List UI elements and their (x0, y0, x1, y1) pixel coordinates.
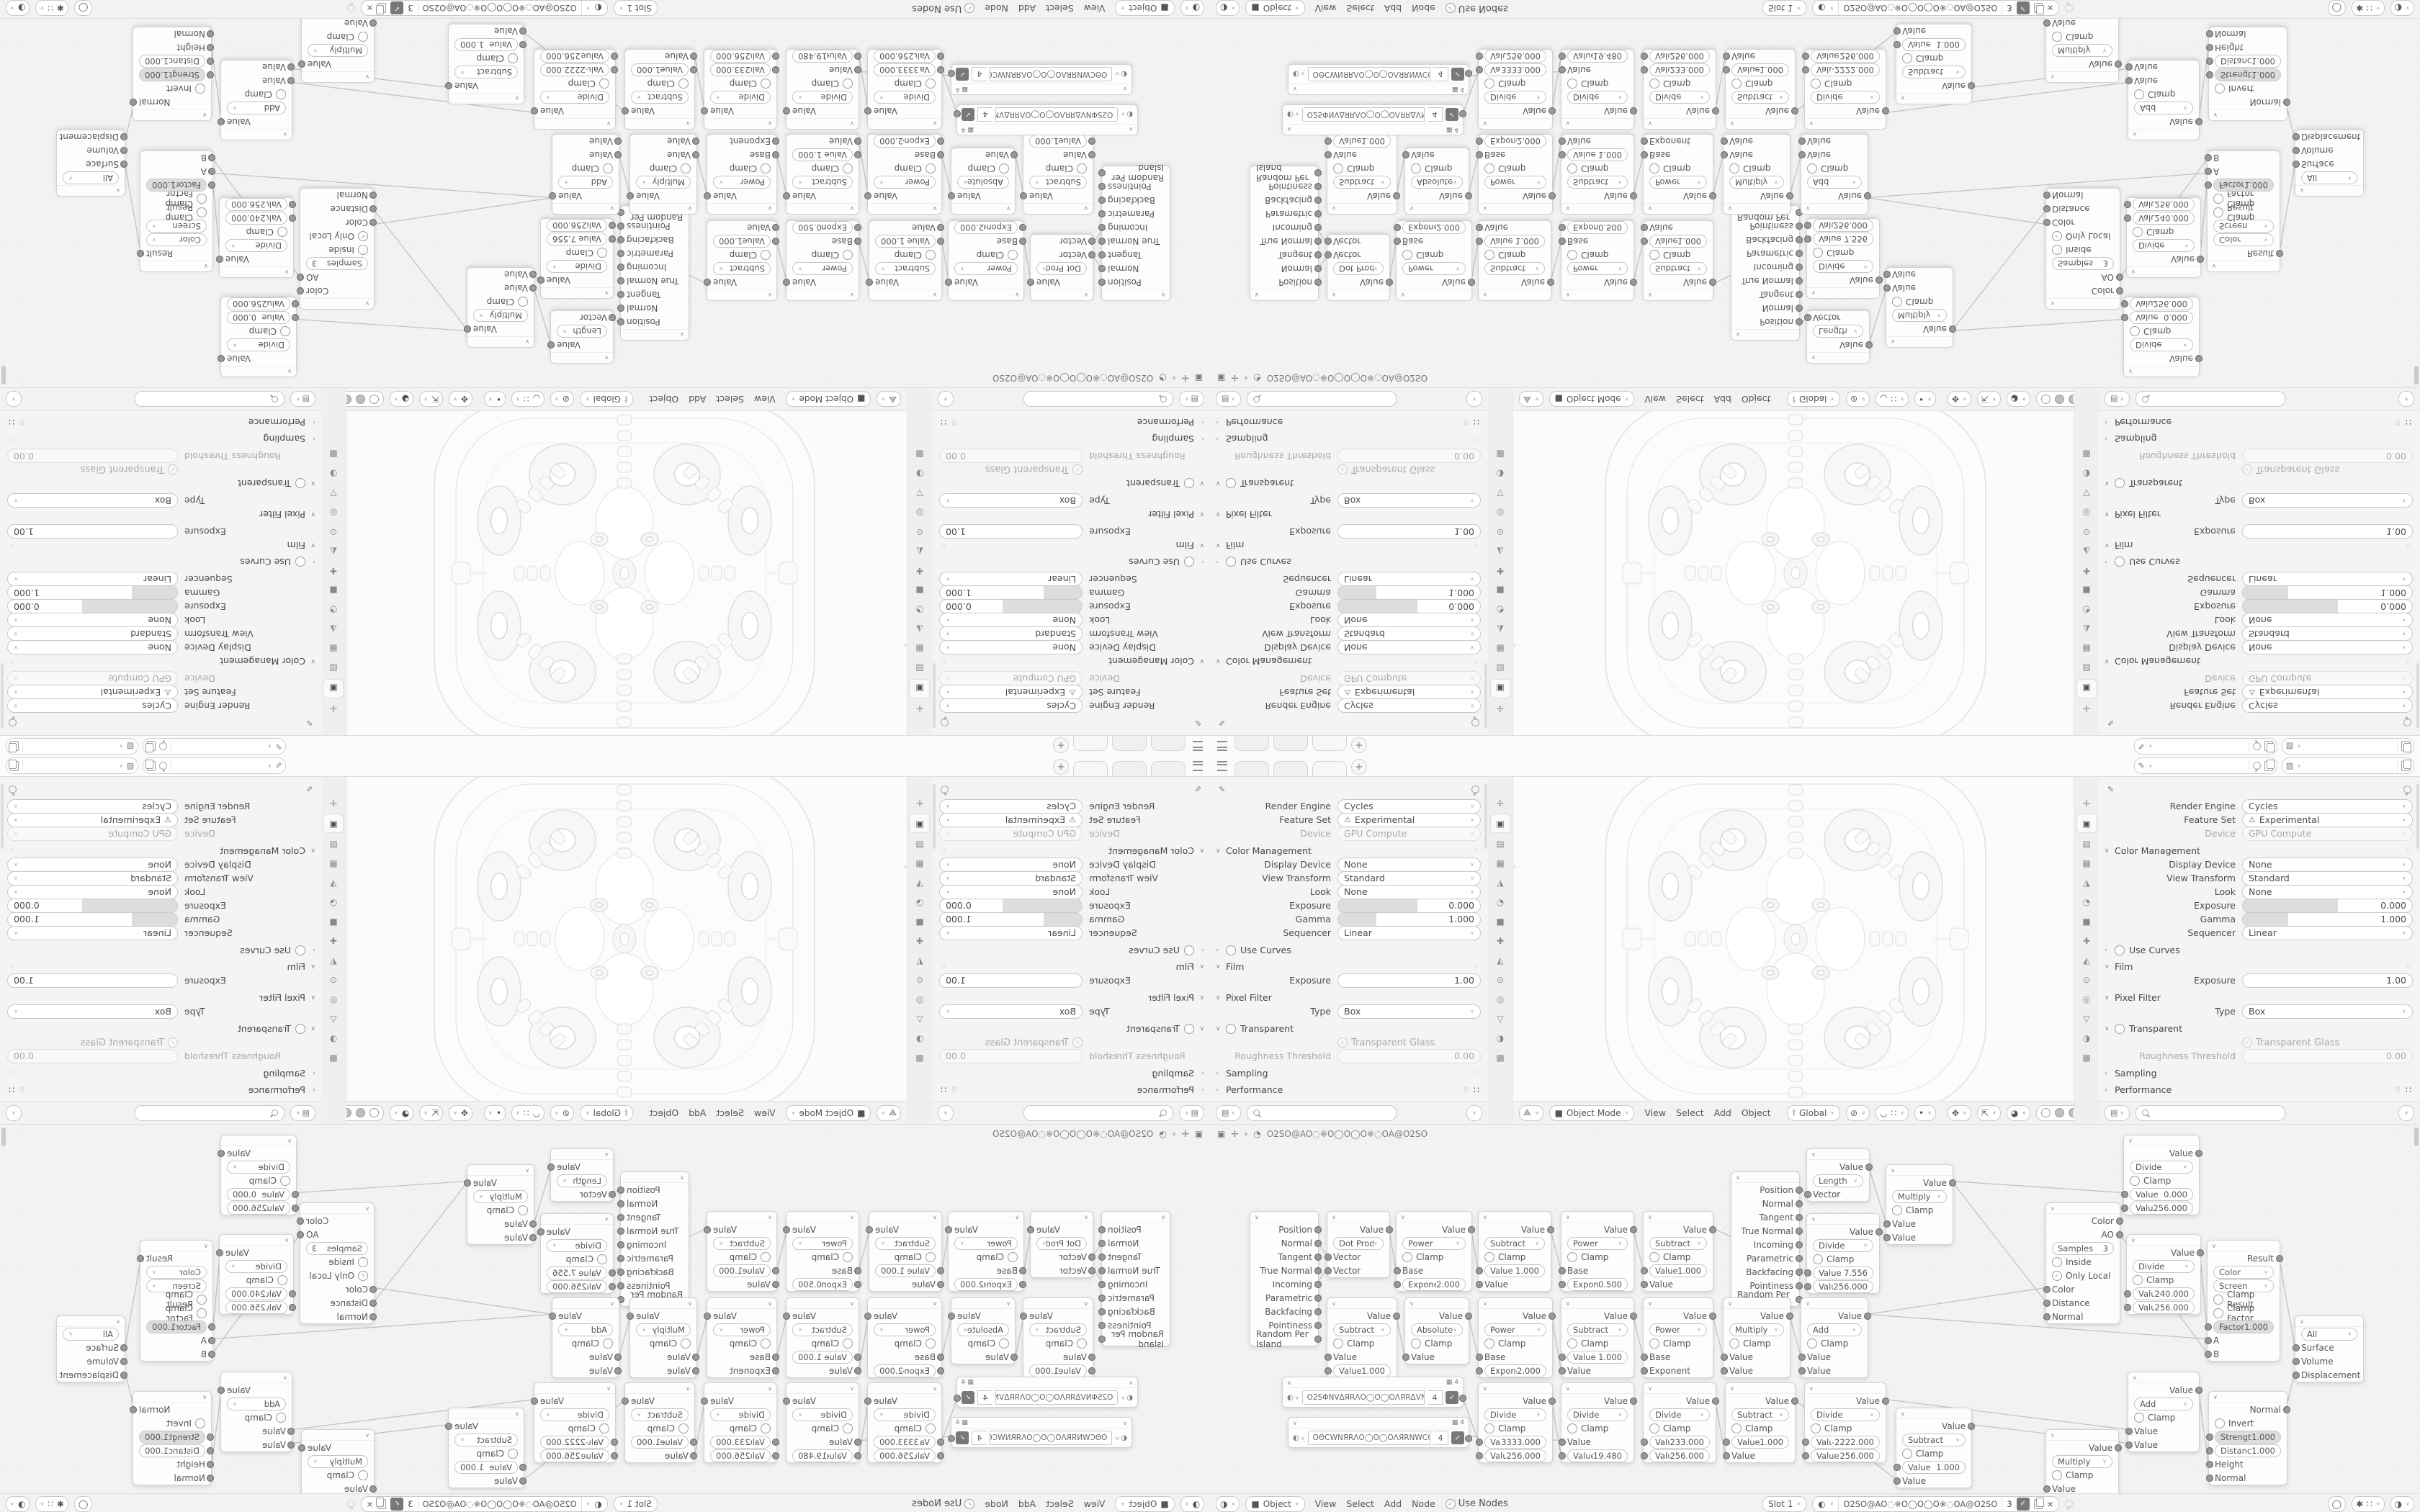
input-socket[interactable] (1721, 1354, 1728, 1361)
checkbox-transparent-glass[interactable]: ✓Transparent Glass (1337, 464, 1435, 475)
node-checkbox-only-local[interactable]: ✓Only Local (310, 1271, 368, 1281)
node-value-field-factor[interactable]: Factor1.000 (2213, 179, 2274, 192)
node-collapse-chevron[interactable]: ∨ (1250, 289, 1318, 300)
scrollbar[interactable] (1484, 663, 1487, 728)
node[interactable]: ∨All∨SurfaceVolumeDisplacement (56, 1315, 125, 1382)
node-operation-select[interactable]: Divide∨ (792, 91, 853, 104)
node[interactable]: ∨ValueAdd∨ClampValueValue (1801, 1297, 1868, 1378)
output-socket[interactable] (1864, 192, 1871, 199)
output-socket[interactable] (1630, 107, 1637, 114)
input-socket[interactable] (1476, 138, 1483, 145)
output-socket[interactable] (1630, 192, 1637, 199)
node-value-field-value[interactable]: Value240.000 (225, 212, 287, 225)
input-socket[interactable] (2205, 1337, 2212, 1344)
output-socket[interactable] (1099, 1281, 1106, 1288)
gizmo-toggle[interactable]: ✥ ∨ (1948, 1105, 1971, 1121)
section-pixel-filter[interactable]: ∨Pixel Filter (941, 509, 1204, 520)
image-id-selector[interactable]: ▨ ∨ (2282, 757, 2414, 774)
tab-active-tool[interactable]: ✛ (910, 794, 930, 812)
node-collapse-chevron[interactable]: ∨ (2208, 1241, 2280, 1251)
section-pixel-filter[interactable]: ∨Pixel Filter (1216, 992, 1479, 1003)
node-collapse-chevron[interactable]: ∨ (2127, 1235, 2200, 1246)
input-socket[interactable] (1894, 1477, 1901, 1485)
tab-physics[interactable]: ⊙ (324, 523, 344, 541)
node-collapse-chevron[interactable]: ∨ (449, 93, 524, 104)
shading-wireframe-icon[interactable] (2041, 1108, 2051, 1117)
node-checkbox-clamp[interactable]: Clamp (977, 251, 1018, 261)
node-collapse-chevron[interactable]: ∨ (57, 185, 125, 196)
gizmo-toggle[interactable]: ✥ ∨ (449, 1105, 472, 1121)
material-name[interactable]: O2SO@AO◌※O◯O◯O※◌OA@O2SO (1843, 4, 1997, 14)
output-socket[interactable] (299, 60, 306, 68)
node-operation-select[interactable]: Subtract∨ (1649, 263, 1707, 276)
output-socket[interactable] (1314, 1240, 1322, 1247)
shading-solid-icon[interactable] (2055, 395, 2064, 404)
node-checkbox-clamp[interactable]: Clamp (1811, 1423, 1852, 1434)
node-checkbox-clamp[interactable]: Clamp (895, 251, 936, 261)
node[interactable]: ∨ValueDivide∨ClampValue7.556Value256.000 (540, 218, 614, 299)
output-socket[interactable] (618, 236, 625, 243)
node-value-field-distance[interactable]: Distance1.000 (139, 55, 205, 68)
output-socket[interactable] (446, 82, 453, 89)
tab-active-tool[interactable]: ✛ (324, 794, 344, 812)
select-look[interactable]: None∨ (1337, 885, 1481, 899)
properties-editor-icon[interactable]: ▤ ∨ (290, 391, 315, 407)
output-socket[interactable] (1549, 1313, 1556, 1320)
input-socket[interactable] (2125, 1428, 2133, 1435)
output-socket[interactable] (2195, 1387, 2202, 1394)
node-operation-select[interactable]: Length∨ (557, 1174, 607, 1187)
node-operation-select[interactable]: Add∨ (558, 1323, 613, 1336)
node-value-field-value[interactable]: Value256.000 (1484, 1449, 1546, 1462)
input-socket[interactable] (1804, 235, 1811, 243)
checkbox-transparent-glass[interactable]: ✓Transparent Glass (81, 464, 178, 475)
section-pixel-filter[interactable]: ∨Pixel Filter (941, 992, 1204, 1003)
node-operation-select[interactable]: Add∨ (227, 102, 286, 115)
node-checkbox-clamp[interactable]: Clamp (730, 1423, 771, 1434)
output-socket[interactable] (618, 1282, 625, 1290)
node[interactable]: ∨PositionNormalTangentTrue NormalIncomin… (1101, 166, 1170, 301)
tab-object[interactable]: ■ (1491, 912, 1510, 930)
node-operation-select[interactable]: Multiply∨ (1729, 176, 1784, 189)
tab-active-tool[interactable]: ✛ (1491, 794, 1510, 812)
node-collapse-chevron[interactable]: ∨ (1405, 203, 1469, 214)
node-checkbox-clamp[interactable]: Clamp (1411, 1338, 1452, 1349)
output-socket[interactable] (1796, 1200, 1803, 1207)
input-socket[interactable] (2121, 300, 2128, 307)
node-operation-select[interactable]: Multiply∨ (636, 176, 691, 189)
output-socket[interactable] (865, 1398, 872, 1405)
select-view-transform[interactable]: Standard∨ (1337, 871, 1481, 886)
tab-particles[interactable]: ◭ (910, 951, 930, 969)
node-checkbox-clamp[interactable]: Clamp (895, 1252, 936, 1262)
select-feature-set[interactable]: ⚠Experimental∨ (1337, 813, 1481, 827)
properties-search-input[interactable] (2136, 1105, 2285, 1121)
tab-output[interactable]: ▤ (2077, 834, 2097, 852)
node[interactable]: ∨ValueMultiply∨ClampValueValue (1723, 1297, 1791, 1378)
field-roughness-threshold[interactable]: 0.00 (1337, 449, 1481, 464)
brush-id-selector[interactable]: ✎ ∨ (2134, 738, 2277, 755)
node[interactable]: ∨ValueSubtract∨ClampValue1.000Value (1561, 1297, 1634, 1378)
tab-object[interactable]: ■ (910, 912, 930, 930)
tab-view-layer[interactable]: ▦ (324, 640, 344, 658)
tab-output[interactable]: ▤ (324, 660, 344, 678)
group-name[interactable]: OΘCWNЯRΛO◯O◯OΛЯRNWCΘO (1308, 67, 1430, 81)
group-icon[interactable]: ◐∨ (1115, 71, 1127, 78)
node[interactable]: ∨ValueSubtract∨ClampValue1.000Value (1896, 1408, 1972, 1488)
node-value-field-value[interactable]: Value-2222.000 (540, 1436, 609, 1449)
section-use-curves[interactable]: ›Use Curves (2105, 557, 2411, 567)
node-checkbox-invert[interactable]: Invert (2215, 84, 2254, 94)
input-socket[interactable] (1641, 1452, 1648, 1459)
section-film[interactable]: ∨Film∷ (941, 961, 1204, 972)
output-socket[interactable] (218, 1150, 225, 1157)
output-socket[interactable] (1314, 238, 1322, 245)
output-socket[interactable] (1393, 192, 1400, 199)
input-socket[interactable] (1723, 53, 1730, 60)
fake-user-shield-icon[interactable]: ✓ (1451, 1431, 1464, 1444)
select-sequencer[interactable]: Linear∨ (2242, 926, 2413, 940)
node[interactable]: ∨NormalInvertStrength1.000Distance1.000H… (2208, 1391, 2287, 1485)
output-socket[interactable] (618, 318, 625, 325)
menu-icon[interactable] (1217, 761, 1227, 771)
node-collapse-chevron[interactable]: ∨ (1023, 203, 1093, 214)
node-collapse-chevron[interactable]: ∨ (1397, 1212, 1471, 1223)
node-collapse-chevron[interactable]: ∨ (1479, 118, 1552, 129)
node[interactable]: ∨ValueSubtract∨ClampValue1.000Value (707, 220, 777, 301)
node-collapse-chevron[interactable]: ∨ (1896, 93, 1971, 104)
node-operation-select[interactable]: Add∨ (558, 176, 613, 189)
select-feature-set[interactable]: ⚠Experimental∨ (2242, 685, 2413, 700)
node-value-field-value[interactable]: Value240.000 (2133, 212, 2195, 225)
node-value-field-exponent[interactable]: Exponent2.000 (954, 222, 1018, 235)
material-name[interactable]: O2SO@AO◌※O◯O◯O※◌OA@O2SO (423, 1499, 577, 1509)
input-socket[interactable] (2293, 147, 2300, 154)
menu-add[interactable]: Add (1714, 394, 1731, 405)
output-socket[interactable] (1028, 1226, 1035, 1233)
node-group[interactable]: ∨▦ 4◐∨O2SΦNVΔЯRΛO◯O◯OΛЯRΔVNΦS2O4✓ (956, 1377, 1138, 1408)
select-sequencer[interactable]: Linear∨ (939, 926, 1083, 940)
node[interactable]: ∨ColorAOSamples3Inside✓Only LocalColorDi… (300, 188, 375, 310)
input-socket[interactable] (1641, 224, 1648, 231)
node-collapse-chevron[interactable]: ∨ (2209, 1392, 2287, 1403)
input-socket[interactable] (1394, 1281, 1401, 1288)
properties-search-input[interactable] (2136, 391, 2285, 407)
section-film[interactable]: ∨Film∷ (2105, 540, 2411, 551)
node-operation-select[interactable]: Divide∨ (225, 1260, 287, 1273)
group-icon[interactable]: ◐∨ (1293, 71, 1305, 78)
output-socket[interactable] (865, 192, 872, 199)
input-socket[interactable] (1325, 1267, 1332, 1274)
node-collapse-chevron[interactable]: ∨ (1479, 203, 1552, 214)
select-feature-set[interactable]: ⚠Experimental∨ (939, 685, 1083, 700)
menu-object[interactable]: Object (649, 1107, 678, 1118)
node-value-field-exponent[interactable]: Exponent0.500 (792, 1278, 853, 1291)
node-operation-select[interactable]: Power∨ (1649, 176, 1707, 189)
tab-view-layer[interactable]: ▦ (324, 854, 344, 872)
section-color-management[interactable]: ∨Color Management∷ (2105, 656, 2411, 667)
node-collapse-chevron[interactable]: ∨ (2295, 1316, 2363, 1327)
orientation-select[interactable]: ⟟ Global ∨ (1787, 392, 1841, 408)
node-value-field-value[interactable]: Value256.000 (710, 50, 771, 63)
output-socket[interactable] (1314, 1336, 1322, 1343)
node-value-field-value[interactable]: Value7.556 (1813, 233, 1873, 246)
tab-world[interactable]: ◔ (1491, 601, 1510, 619)
snap-button[interactable]: ◡∷ ∨ (1875, 392, 1909, 408)
select-display-device[interactable]: None∨ (2242, 858, 2413, 872)
node[interactable]: ∨ValueSubtract∨ClampValueValue1.000 (1327, 1297, 1397, 1378)
tab-material[interactable]: ◑ (910, 465, 930, 483)
node[interactable]: ∨All∨SurfaceVolumeDisplacement (2295, 130, 2364, 197)
node-collapse-chevron[interactable]: ∨ (630, 1298, 696, 1309)
node-value-field-value[interactable]: Value1.000 (1484, 1264, 1545, 1277)
node-operation-select[interactable]: Divide∨ (1649, 91, 1710, 104)
mode-select[interactable]: ■ Object Mode ∨ (786, 1105, 871, 1121)
field-gamma[interactable]: 1.000 (7, 912, 178, 927)
section-transparent[interactable]: ∨Transparent (941, 1023, 1204, 1034)
input-socket[interactable] (1559, 1367, 1566, 1374)
node-operation-select[interactable]: Divide∨ (874, 91, 936, 104)
node-collapse-chevron[interactable]: ∨ (541, 287, 613, 298)
output-socket[interactable] (704, 279, 712, 286)
node-operation-select[interactable]: All∨ (2301, 1328, 2357, 1341)
node[interactable]: ∨ValueDivide∨ClampValue-2222.000Value256… (534, 49, 616, 130)
snap-button[interactable]: ◡∷ ∨ (511, 1105, 544, 1121)
checkbox-transparent-glass[interactable]: ✓Transparent Glass (985, 464, 1083, 475)
xray-toggle[interactable]: ◕ ∨ (2007, 1105, 2030, 1121)
output-socket[interactable] (618, 1187, 625, 1194)
pin-icon[interactable] (1471, 719, 1479, 727)
input-socket[interactable] (1559, 66, 1566, 73)
node-checkbox-clamp[interactable]: Clamp (1813, 1254, 1854, 1264)
node-value-field-factor[interactable]: Factor1.000 (2213, 1320, 2274, 1333)
node-operation-select[interactable]: Absolute∨ (1411, 1323, 1463, 1336)
menu-view[interactable]: View (1084, 3, 1106, 14)
add-workspace-button[interactable]: + (1053, 759, 1069, 775)
pin-icon[interactable] (941, 719, 949, 727)
output-socket[interactable] (1099, 1254, 1106, 1261)
node-operation-select[interactable]: Power∨ (954, 263, 1018, 276)
node-collapse-chevron[interactable]: ∨ (1807, 287, 1879, 298)
tab-object-data[interactable]: ▽ (1491, 1009, 1510, 1027)
output-socket[interactable] (618, 222, 625, 230)
node-value-field-strength[interactable]: Strength1.000 (139, 69, 205, 82)
field-exposure[interactable]: 1.00 (1337, 973, 1481, 988)
node-checkbox-clamp[interactable]: Clamp (647, 1423, 689, 1434)
node-collapse-chevron[interactable]: ∨ (1886, 336, 1953, 347)
output-socket[interactable] (622, 1398, 629, 1405)
node-operation-select[interactable]: Subtract∨ (631, 91, 689, 104)
output-socket[interactable] (1796, 264, 1803, 271)
tab-constraints[interactable]: ◎ (1491, 504, 1510, 522)
node-operation-select[interactable]: Multiply∨ (1892, 1190, 1947, 1203)
node-checkbox-clamp[interactable]: Clamp (1729, 1338, 1770, 1349)
snapping-toggle[interactable]: ◯ (2328, 1, 2346, 17)
node-value-field-exponent[interactable]: Exponent2.000 (874, 1364, 936, 1377)
select-render-engine[interactable]: Cycles∨ (7, 699, 178, 714)
menu-add[interactable]: Add (1714, 1107, 1731, 1118)
node[interactable]: ∨NormalInvertStrength1.000Distance1.000H… (133, 1391, 212, 1485)
workspace-tab-active[interactable] (1073, 736, 1108, 751)
section-transparent[interactable]: ∨Transparent (2105, 478, 2411, 489)
add-workspace-button[interactable]: + (1351, 737, 1367, 753)
select-device[interactable]: GPU Compute∨ (2242, 827, 2413, 841)
workspace-tab-active[interactable] (1312, 761, 1347, 776)
output-socket[interactable] (704, 1313, 712, 1320)
field-gamma[interactable]: 1.000 (1337, 586, 1481, 600)
node-checkbox-clamp[interactable]: Clamp (1902, 54, 1943, 64)
node-collapse-chevron[interactable]: ∨▦ 4 (957, 1377, 1137, 1388)
tab-texture[interactable]: ▩ (324, 1048, 344, 1066)
node-collapse-chevron[interactable]: ∨ (1479, 1298, 1552, 1309)
node[interactable]: ∨ValueSubtract∨ClampValue1.000Value (1725, 1382, 1796, 1463)
output-socket[interactable] (784, 1313, 791, 1320)
tab-texture[interactable]: ▩ (1491, 1048, 1510, 1066)
node-checkbox-invert[interactable]: Invert (166, 84, 205, 94)
menu-add[interactable]: Add (689, 394, 706, 405)
node-checkbox-clamp[interactable]: Clamp (1484, 79, 1525, 89)
unlink-button[interactable]: × (367, 4, 374, 14)
node-collapse-chevron[interactable]: ∨ (621, 329, 689, 340)
node[interactable]: ∨ValueMultiply∨ClampValueValue (1723, 134, 1791, 215)
tab-object-data[interactable]: ▽ (324, 1009, 344, 1027)
node[interactable]: ∨ValueSubtract∨ClampValueValue1.000 (1023, 134, 1093, 215)
node[interactable]: ∨ValueSubtract∨ClampValueValue1.000 (1023, 1297, 1093, 1378)
node-operation-select[interactable]: Color∨ (2213, 234, 2274, 247)
node-canvas[interactable]: ▣ ✛ › ◔ O2SO@AO◌※O◯O◯O※◌OA@O2SO ∨Positio… (0, 19, 1210, 387)
node-value-field-distance[interactable]: Distance1.000 (2215, 55, 2281, 68)
menu-view[interactable]: View (1644, 1107, 1666, 1118)
section-use-curves[interactable]: ›Use Curves (1216, 945, 1479, 955)
node-checkbox-clamp[interactable]: Clamp (1649, 1252, 1690, 1262)
node-collapse-chevron[interactable]: ∨ (1807, 1214, 1879, 1225)
node-collapse-chevron[interactable]: ∨ (1726, 1383, 1795, 1394)
output-socket[interactable] (1028, 279, 1035, 286)
tab-texture[interactable]: ▩ (910, 446, 930, 464)
node[interactable]: ∨ValueSubtract∨ClampValue1.000Value (869, 1211, 942, 1292)
select-feature-set[interactable]: ⚠Experimental∨ (7, 813, 178, 827)
node-value-field-value[interactable]: Value0.000 (227, 312, 290, 325)
node-operation-select[interactable]: Subtract∨ (1484, 263, 1545, 276)
node-checkbox-inside[interactable]: Inside (2052, 1257, 2092, 1267)
output-socket[interactable] (1314, 251, 1322, 258)
input-socket[interactable] (2043, 1286, 2051, 1293)
tab-modifiers[interactable]: ✚ (1491, 932, 1510, 950)
tab-particles[interactable]: ◭ (2077, 543, 2097, 561)
field-exposure[interactable]: 0.000 (2242, 600, 2413, 614)
node[interactable]: ∨ValueDivide∨ClampValue0.000Valu256.000 (220, 1135, 297, 1215)
node-value-field-factor[interactable]: Factor1.000 (146, 1320, 207, 1333)
output-socket[interactable] (949, 71, 956, 78)
node-collapse-chevron[interactable]: ∨ (2127, 266, 2200, 277)
node[interactable]: ∨ValueDot Product∨VectorVector (1030, 1211, 1093, 1278)
node[interactable]: ∨ValueSubtract∨ClampValue1.000Value (448, 1408, 524, 1488)
select-sequencer[interactable]: Linear∨ (1337, 572, 1481, 587)
output-socket[interactable] (1314, 224, 1322, 231)
output-socket[interactable] (130, 1406, 138, 1413)
node-value-field-valu[interactable]: Valu256.000 (2130, 298, 2193, 311)
node-operation-select[interactable]: Power∨ (792, 1237, 853, 1250)
input-socket[interactable] (1894, 1464, 1901, 1471)
output-socket[interactable] (1099, 210, 1106, 217)
input-socket[interactable] (2124, 1304, 2131, 1311)
output-socket[interactable] (538, 1228, 545, 1236)
tab-view-layer[interactable]: ▦ (2077, 854, 2097, 872)
input-socket[interactable] (2206, 1461, 2213, 1468)
editor-type-button[interactable]: ◑ ∨ (1180, 1, 1204, 17)
node[interactable]: ∨ValueDivide∨ClampValue233.000Value256.0… (1643, 49, 1716, 130)
tab-particles[interactable]: ◭ (324, 543, 344, 561)
copy-icon[interactable] (147, 761, 156, 771)
node-checkbox-only-local[interactable]: ✓Only Local (2052, 1271, 2110, 1281)
node[interactable]: ∨ValuePower∨ClampBaseExponent2.000 (948, 1211, 1024, 1292)
node-collapse-chevron[interactable]: ∨ (1726, 118, 1795, 129)
node[interactable]: ∨ValueAdd∨ClampValueValue (220, 60, 292, 140)
node-collapse-chevron[interactable]: ∨ (1479, 1212, 1551, 1223)
node[interactable]: ∨ValuePower∨ClampBaseExponent0.500 (786, 220, 859, 301)
node-checkbox-clamp[interactable]: Clamp (2133, 228, 2174, 238)
node-collapse-chevron[interactable]: ∨ (2046, 71, 2118, 82)
output-socket[interactable] (1796, 250, 1803, 257)
menu-select[interactable]: Select (1046, 3, 1074, 14)
workspace-tab[interactable] (1234, 736, 1269, 751)
node-value-field-value[interactable]: Value256.000 (874, 1449, 936, 1462)
select-device[interactable]: GPU Compute∨ (1337, 827, 1481, 841)
group-users-count[interactable]: 4 (1428, 1390, 1443, 1405)
node-operation-select[interactable]: Divide∨ (547, 1239, 607, 1252)
input-socket[interactable] (1802, 1439, 1809, 1446)
tab-render[interactable]: ▣ (323, 814, 344, 833)
input-socket[interactable] (2293, 1344, 2300, 1351)
workspace-tab[interactable] (1112, 761, 1147, 776)
node-operation-select[interactable]: Dot Product∨ (1036, 1237, 1087, 1250)
input-socket[interactable] (1325, 151, 1332, 158)
node-checkbox-clamp[interactable]: Clamp (812, 251, 853, 261)
output-socket[interactable] (704, 192, 712, 199)
tab-object-data[interactable]: ▽ (1491, 485, 1510, 503)
tab-modifiers[interactable]: ✚ (1491, 562, 1510, 580)
node[interactable]: ∨ValueMultiply∨ClampValueValue (1886, 267, 1953, 348)
node-value-field-value[interactable]: Value233.000 (710, 1436, 771, 1449)
select-device[interactable]: GPU Compute∨ (939, 672, 1083, 686)
node-checkbox-clamp[interactable]: Clamp (1649, 1338, 1690, 1349)
overlay-toggle[interactable]: ⇱ ∨ (419, 392, 443, 408)
tab-scene[interactable]: ◮ (910, 873, 930, 891)
material-id-block[interactable]: ◐∨ O2SO@AO◌※O◯O◯O※◌OA@O2SO 3 ✓ × (1812, 1, 2059, 17)
input-socket[interactable] (1402, 151, 1410, 158)
tab-world[interactable]: ◔ (324, 601, 344, 619)
node[interactable]: ∨ResultColor∨Screen∨Clamp ResultClamp Fa… (140, 1240, 213, 1362)
group-name[interactable]: O2SΦNVΔЯRΛO◯O◯OΛЯRΔVNΦS2O (1302, 1390, 1425, 1405)
fake-user-shield-icon[interactable]: ✓ (1446, 108, 1458, 121)
field-exposure[interactable]: 0.000 (7, 899, 178, 913)
add-workspace-button[interactable]: + (1351, 759, 1367, 775)
node-operation-select[interactable]: Absolute∨ (1411, 176, 1463, 189)
input-socket[interactable] (2205, 168, 2212, 175)
node-operation-select[interactable]: Divide∨ (2133, 1260, 2195, 1273)
overlay-toggle[interactable]: ⇱ ∨ (419, 1105, 443, 1121)
section-sampling[interactable]: ›Sampling∷ (941, 433, 1204, 444)
node-checkbox-only-local[interactable]: ✓Only Local (2052, 232, 2110, 242)
node[interactable]: ∨ValueSubtract∨ClampValue1.000Value (1896, 24, 1972, 104)
output-socket[interactable] (1796, 318, 1803, 325)
node-checkbox-clamp[interactable]: Clamp (1484, 1338, 1525, 1349)
brush-id-selector[interactable]: ✎ ∨ (143, 757, 286, 774)
node-collapse-chevron[interactable]: ∨▦ 4 (1283, 1377, 1463, 1388)
output-socket[interactable] (622, 107, 629, 114)
material-users-count[interactable]: 3 (408, 1499, 413, 1509)
node-group[interactable]: ∨▦ 4◐∨O2SΦNVΔЯRΛO◯O◯OΛЯRΔVNΦS2O4✓ (1282, 1377, 1464, 1408)
